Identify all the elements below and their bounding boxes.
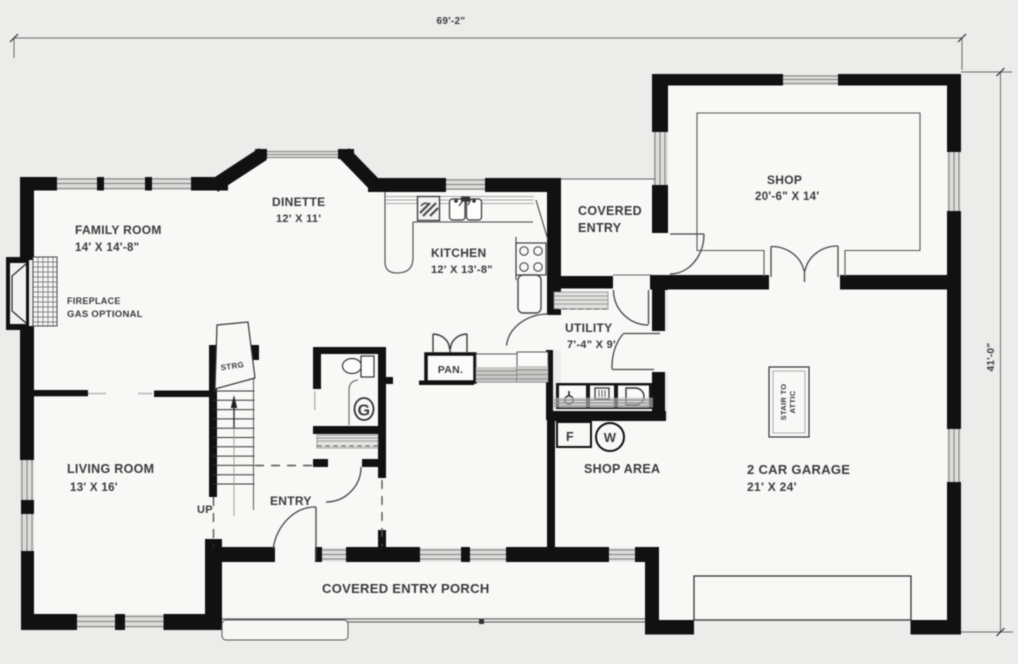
svg-text:G: G <box>358 403 371 420</box>
svg-text:SHOP AREA: SHOP AREA <box>584 462 660 476</box>
svg-text:UP: UP <box>197 504 213 516</box>
svg-text:FAMILY ROOM: FAMILY ROOM <box>75 223 162 237</box>
svg-text:20'-6" X 14': 20'-6" X 14' <box>755 191 819 203</box>
svg-text:ENTRY: ENTRY <box>578 221 622 235</box>
svg-text:STAIR TO: STAIR TO <box>779 384 788 421</box>
svg-text:FIREPLACE: FIREPLACE <box>67 296 121 306</box>
svg-text:GAS OPTIONAL: GAS OPTIONAL <box>67 309 143 320</box>
svg-text:PAN.: PAN. <box>438 364 464 376</box>
svg-text:LIVING ROOM: LIVING ROOM <box>67 462 154 476</box>
svg-text:41'-0": 41'-0" <box>986 343 997 372</box>
svg-text:69'-2": 69'-2" <box>437 16 466 27</box>
svg-text:12' X 13'-8": 12' X 13'-8" <box>431 264 493 276</box>
svg-text:7'-4" X 9': 7'-4" X 9' <box>567 339 616 351</box>
svg-text:COVERED ENTRY PORCH: COVERED ENTRY PORCH <box>322 581 490 596</box>
svg-text:SHOP: SHOP <box>767 173 802 187</box>
svg-text:ENTRY: ENTRY <box>270 494 312 508</box>
svg-text:KITCHEN: KITCHEN <box>431 246 486 260</box>
svg-text:UTILITY: UTILITY <box>565 321 612 335</box>
svg-text:14' X 14'-8": 14' X 14'-8" <box>75 242 139 254</box>
svg-text:ATTIC: ATTIC <box>788 390 797 413</box>
svg-text:DINETTE: DINETTE <box>272 195 325 209</box>
svg-text:12' X 11': 12' X 11' <box>276 213 321 225</box>
svg-text:2 CAR GARAGE: 2 CAR GARAGE <box>747 462 850 477</box>
svg-text:W: W <box>604 430 617 445</box>
svg-text:21' X 24': 21' X 24' <box>747 480 797 494</box>
svg-text:F: F <box>566 430 574 444</box>
svg-text:COVERED: COVERED <box>578 204 642 218</box>
svg-text:13' X 16': 13' X 16' <box>70 482 118 494</box>
